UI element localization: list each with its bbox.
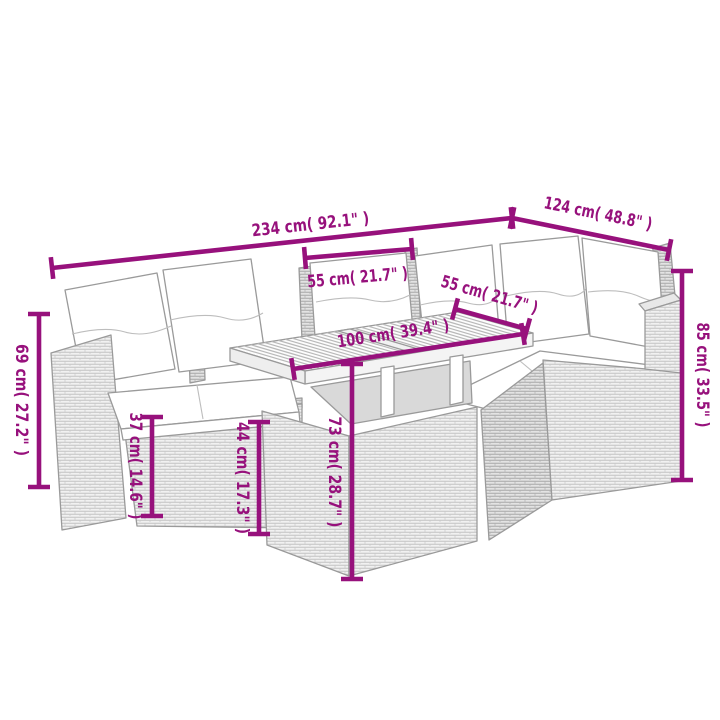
dim-label-armrest-height-left: 69 cm( 27.2" ) [11,344,31,456]
diagram-svg: 234 cm( 92.1" ) 124 cm( 48.8" ) 55 cm( 2… [0,0,720,720]
dim-armrest-height-left: 69 cm( 27.2" ) [11,314,50,487]
dim-label-backrest-height-right: 85 cm( 33.5" ) [692,323,712,428]
dimension-diagram: 234 cm( 92.1" ) 124 cm( 48.8" ) 55 cm( 2… [0,0,720,720]
right-armrest [645,300,681,373]
dimension-tick [304,247,306,269]
dimension-tick [51,257,53,279]
dim-label-table-height: 73 cm( 28.7" ) [324,417,344,528]
dimension-tick [411,238,413,260]
right-seat-base [543,360,681,500]
table-leg [381,366,394,417]
dim-label-seat-cushion-height: 44 cm( 17.3" ) [232,422,252,534]
dim-label-seat-base-height: 37 cm( 14.6" ) [125,413,145,520]
table-base-right [349,407,477,576]
table-leg [450,355,463,405]
